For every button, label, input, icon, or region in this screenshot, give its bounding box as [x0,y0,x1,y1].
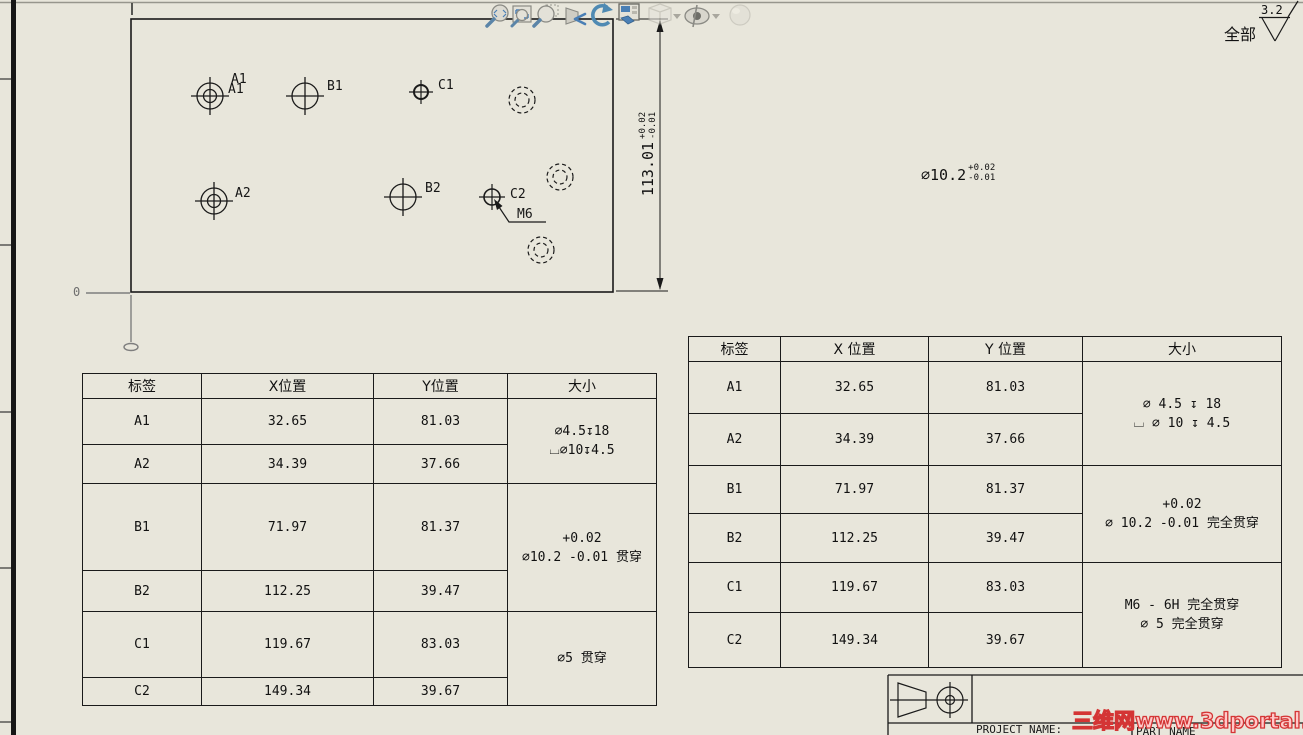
hole-table-row-label: A2 [83,445,202,484]
hole-table-row-label: B2 [689,514,781,563]
hole-table-header: Y 位置 [929,337,1083,362]
zoom-icon[interactable] [534,5,558,26]
hole-table-cell: 32.65 [202,399,374,445]
hole-table-cell: 39.67 [374,678,508,706]
hole-c1[interactable] [409,80,433,104]
hole-size-cell: M6 - 6H 完全贯穿∅ 5 完全贯穿 [1083,563,1282,668]
hole-table-row-label: B1 [689,466,781,514]
hole-table-cell: 71.97 [781,466,929,514]
diameter-note-value: ∅10.2 [921,166,966,184]
hole-table-cell: 39.47 [374,571,508,612]
hole-table-header: 大小 [1083,337,1282,362]
hole-table-cell: 32.65 [781,362,929,414]
hole-label-a2: A2 [235,186,251,201]
view-orientation-icon[interactable] [619,4,639,24]
hole-table-cell: 39.47 [929,514,1083,563]
sheet-left-border [11,0,16,735]
hole-table-row-label: A1 [689,362,781,414]
hole-table-cell: 71.97 [202,484,374,571]
hole-table-header: Y位置 [374,374,508,399]
hidden-hole-middle [547,164,573,190]
hole-table-cell: 149.34 [202,678,374,706]
hole-label-c1: C1 [438,78,454,93]
hole-label-a1: A1 [228,82,244,97]
height-dimension-value: 113.01 [639,142,657,196]
hole-label-b2: B2 [425,181,441,196]
hole-size-cell: ∅ 4.5 ↧ 18⌴ ∅ 10 ↧ 4.5 [1083,362,1282,466]
hole-size-cell: +0.02∅ 10.2 -0.01 完全贯穿 [1083,466,1282,563]
thread-callout: M6 [517,207,533,222]
hole-a2[interactable] [195,182,233,220]
hole-size-cell: +0.02∅10.2 -0.01 贯穿 [508,484,657,612]
hole-table-cell: 112.25 [202,571,374,612]
hole-table-row-label: C2 [83,678,202,706]
hole-b1[interactable] [286,77,324,115]
watermark: 三维网www.3dportal.cn [1072,705,1303,735]
hole-table-cell: 112.25 [781,514,929,563]
hole-label-b1: B1 [327,79,343,94]
hole-table-header: 标签 [83,374,202,399]
hole-table-row-label: A1 [83,399,202,445]
hole-table-cell: 83.03 [374,612,508,678]
hole-table-row-label: A2 [689,414,781,466]
zoom-to-area-icon[interactable] [512,6,531,26]
hole-table-cell: 119.67 [781,563,929,613]
diameter-note[interactable]: ∅10.2 +0.02 -0.01 [921,163,995,184]
hole-table-cell: 37.66 [374,445,508,484]
dim-arrow-down [657,278,664,290]
hole-size-cell: ∅4.5↧18⌴∅10↧4.5 [508,399,657,484]
hole-size-cell: ∅5 贯穿 [508,612,657,706]
hidden-hole-bottom [528,237,554,263]
previous-view-icon[interactable] [566,8,585,24]
sheet-zone-ticks [0,79,11,722]
display-style-dropdown-icon[interactable] [673,14,681,19]
projection-symbol [890,682,968,718]
hole-table-header: 标签 [689,337,781,362]
surface-finish-scope: 全部 [1224,21,1256,45]
hole-table-cell: 37.66 [929,414,1083,466]
height-dimension-tolerance: +0.02 -0.01 [638,112,658,139]
hole-label-c2: C2 [510,187,526,202]
hole-table-row-label: B1 [83,484,202,571]
hole-table-cell: 81.03 [374,399,508,445]
hole-table-cell: 39.67 [929,613,1083,668]
hole-table-header: X位置 [202,374,374,399]
hole-table-cell: 83.03 [929,563,1083,613]
hidden-hole-top [509,87,535,113]
part-outline[interactable] [131,19,613,292]
hole-table-cell: 149.34 [781,613,929,668]
hole-table-cell: 81.37 [374,484,508,571]
surface-finish-value: 3.2 [1261,3,1283,17]
hole-table-cell: 119.67 [202,612,374,678]
heads-up-toolbar [487,3,750,27]
hole-table-cell: 34.39 [781,414,929,466]
hole-table-header: 大小 [508,374,657,399]
display-style-icon[interactable] [649,4,671,24]
origin-marker [86,293,138,351]
hole-table-cell: 81.37 [929,466,1083,514]
hole-table-left: 标签X位置Y位置大小A132.6581.03∅4.5↧18⌴∅10↧4.5A23… [82,373,657,706]
hole-a1[interactable] [191,77,229,115]
height-dimension[interactable]: 113.01 +0.02 -0.01 [634,94,662,214]
hole-table-row-label: C2 [689,613,781,668]
rotate-view-icon[interactable] [593,3,613,25]
hole-table-row-label: C1 [83,612,202,678]
origin-label: 0 [73,285,80,299]
hide-show-items-icon[interactable] [685,5,709,27]
hole-table-cell: 34.39 [202,445,374,484]
hide-show-dropdown-icon[interactable] [712,14,720,19]
hole-table-cell: 81.03 [929,362,1083,414]
cad-drawing-viewport: A1 A1 B1 C1 A2 B2 C2 M6 0 113.01 +0.02 -… [0,0,1303,735]
edit-appearance-icon[interactable] [730,5,750,25]
zoom-to-fit-icon[interactable] [487,5,508,26]
hole-b2[interactable] [384,178,422,216]
hole-table-row-label: B2 [83,571,202,612]
hole-table-row-label: C1 [689,563,781,613]
project-name-label: PROJECT NAME: [976,723,1062,735]
hole-table-header: X 位置 [781,337,929,362]
hole-table-right: 标签X 位置Y 位置大小A132.6581.03∅ 4.5 ↧ 18⌴ ∅ 10… [688,336,1282,668]
diameter-note-tolerance: +0.02 -0.01 [968,163,995,183]
